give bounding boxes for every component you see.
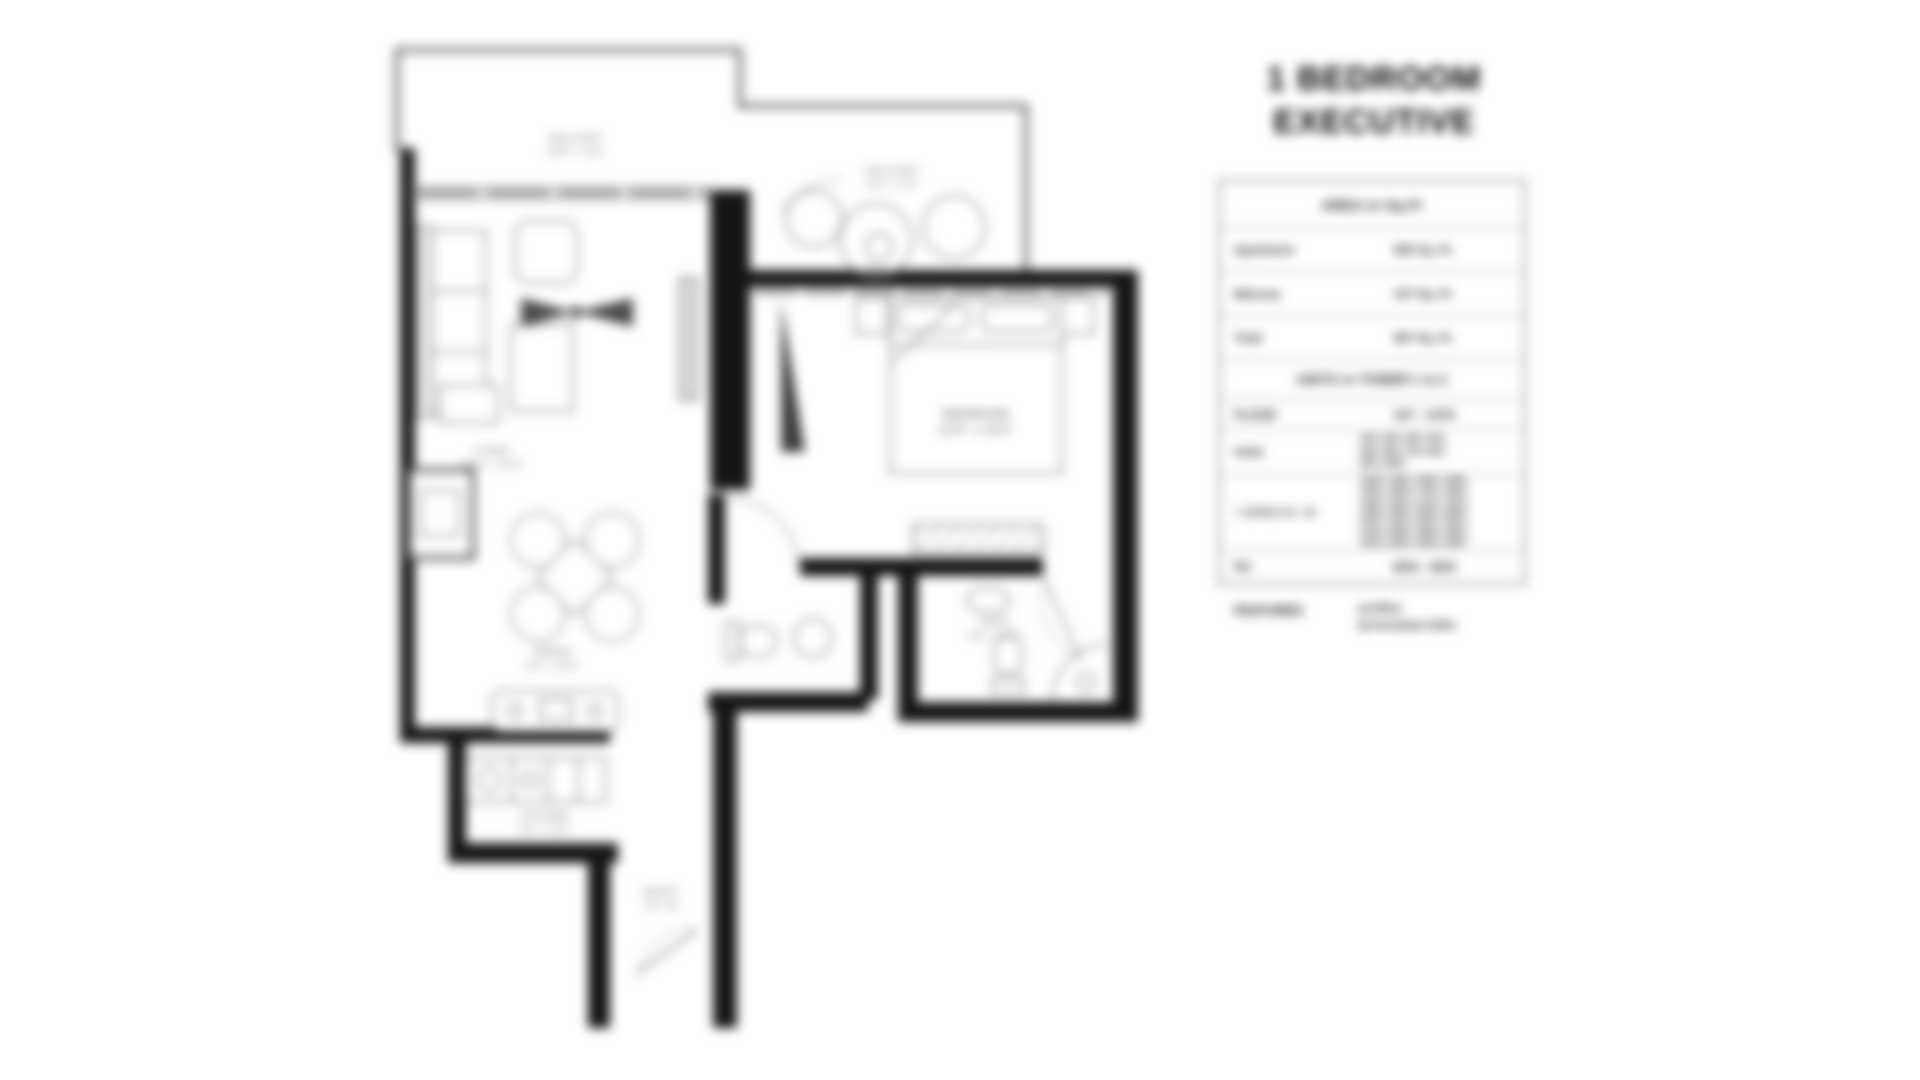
svg-text:BALCONY: BALCONY — [550, 133, 603, 144]
wc-toilet-bowl — [739, 625, 777, 657]
units-row-units: Units 104, 204, 304, 404, 504, 604, 704,… — [1220, 430, 1524, 475]
features-label: FEATURES — [1234, 603, 1303, 618]
plan-title-line1: 1 BEDROOM — [1218, 58, 1530, 101]
tv-console-knob — [508, 704, 522, 718]
pillow — [982, 305, 1052, 331]
bedroom-furniture — [856, 298, 1094, 473]
svg-text:BATH: BATH — [981, 617, 1010, 628]
wall-bath-top — [800, 558, 1043, 576]
plan-title-line2: EXECUTIVE — [1218, 101, 1530, 144]
section-marker — [781, 300, 805, 452]
floorplan-drawing: BALCONY 14'8" x 4'6" BALCONY 9'2" x 7'6" — [0, 0, 1920, 1080]
coffee-table — [511, 325, 573, 411]
store-closet — [409, 470, 473, 558]
svg-text:9'0" x 8'6": 9'0" x 8'6" — [526, 661, 579, 672]
tv-panel — [680, 278, 697, 400]
wall-bedroom-top — [745, 270, 1138, 287]
svg-text:9'2" x 7'6": 9'2" x 7'6" — [866, 180, 919, 191]
fan-blade-right — [575, 298, 633, 327]
sofa-back — [417, 226, 432, 418]
kitchen-counter — [466, 758, 606, 802]
kitchen-hob — [522, 772, 538, 788]
bath-door — [1041, 578, 1081, 660]
living-room-furniture — [417, 221, 697, 423]
wall-bedroom-right — [1113, 270, 1138, 722]
bath-toilet-tank — [992, 678, 1024, 692]
svg-text:LIVING: LIVING — [474, 446, 510, 457]
svg-text:DINING: DINING — [534, 647, 572, 658]
area-row-balcony: Balcony 107 Sq. Ft. — [1220, 272, 1524, 316]
wall-corridor-right — [713, 708, 737, 1028]
svg-text:7'6" x 5'0": 7'6" x 5'0" — [518, 825, 571, 836]
pillow — [898, 305, 968, 331]
area-row-apartment: Apartment 560 Sq. Ft. — [1220, 228, 1524, 272]
wall-kitchen-left — [448, 743, 466, 848]
balcony-table-set — [786, 191, 985, 276]
levels-label: + LEVELS 15 - 34 — [1234, 507, 1315, 518]
area-row-value: 560 Sq. Ft. — [1360, 243, 1488, 257]
bedroom-door-arc — [728, 498, 799, 565]
info-panel: 1 BEDROOM EXECUTIVE AREA in Sq.Ft Apartm… — [1218, 58, 1530, 651]
nightstand-right — [1062, 298, 1094, 334]
svg-text:ENTRY: ENTRY — [643, 887, 679, 898]
wall-bath-left — [898, 568, 918, 708]
svg-text:KITCHEN: KITCHEN — [521, 811, 569, 822]
balcony-chair-right — [923, 196, 985, 258]
entry-door — [636, 929, 698, 974]
units-row-floor: FLOOR 1ST - 14TH — [1220, 400, 1524, 430]
area-row-label: Apartment — [1234, 243, 1294, 257]
ceiling-fan — [521, 298, 633, 327]
balcony-chair-left — [786, 191, 842, 247]
svg-text:4'0" W: 4'0" W — [644, 901, 678, 912]
tv-console-drawer — [540, 700, 572, 720]
svg-text:8'0" x 5'0": 8'0" x 5'0" — [969, 631, 1022, 642]
wc-sink — [794, 619, 832, 657]
area-row-label: Total — [1234, 331, 1262, 345]
units-row-levels: + LEVELS 15 - 34 1104, 1204, 1304, 1404,… — [1220, 475, 1524, 551]
kitchen-label: KITCHEN 7'6" x 5'0" — [518, 811, 571, 836]
balcony-side-label: BALCONY 9'2" x 7'6" — [866, 166, 919, 191]
wc-fixtures — [726, 619, 832, 660]
info-table: AREA in Sq.Ft Apartment 560 Sq. Ft. Balc… — [1218, 180, 1526, 585]
floor-value: 1ST - 14TH — [1360, 408, 1488, 422]
levels-value: 1104, 1204, 1304, 1404, 1504, 1604, 1704… — [1360, 475, 1522, 550]
wc-toilet-tank — [726, 622, 739, 660]
svg-text:BALCONY: BALCONY — [867, 166, 920, 177]
plan-title: 1 BEDROOM EXECUTIVE — [1218, 58, 1530, 144]
wall-corridor-left — [588, 843, 610, 1028]
area-row-value: 667 Sq. Ft. — [1360, 331, 1488, 345]
bath-label: BATH 8'0" x 5'0" — [969, 617, 1022, 642]
bathroom-fixtures — [966, 588, 1107, 700]
shower-curve — [1052, 645, 1107, 700]
side-table — [440, 385, 498, 423]
area-table-header: AREA in Sq.Ft — [1220, 182, 1524, 228]
units-row-ph: PH 3504 - 3604 — [1220, 551, 1524, 583]
dining-set — [511, 513, 639, 641]
wall-bath-divider — [860, 576, 878, 700]
area-row-value: 107 Sq. Ft. — [1360, 287, 1488, 301]
nightstand-left — [856, 298, 888, 334]
units-table-header: UNITS in TOWER 1 & 2 — [1220, 360, 1524, 400]
features-items: a) Office b) Furnished 100% — [1358, 601, 1456, 635]
ph-value: 3504 - 3604 — [1360, 560, 1488, 574]
units-value: 104, 204, 304, 404, 504, 604, 704, 804, … — [1360, 433, 1522, 471]
features-block: FEATURES a) Office b) Furnished 100% — [1218, 601, 1530, 651]
kitchen-sink — [478, 769, 500, 791]
svg-text:14'8" x 4'6": 14'8" x 4'6" — [546, 147, 605, 158]
blurred-layer: BALCONY 14'8" x 4'6" BALCONY 9'2" x 7'6" — [0, 0, 1920, 1080]
balcony-table — [840, 204, 912, 276]
shower-drain — [1077, 673, 1095, 691]
balcony-table-center — [866, 234, 892, 260]
walls — [400, 148, 1138, 1028]
bath-sink — [966, 588, 1010, 612]
balcony-top-label: BALCONY 14'8" x 4'6" — [546, 133, 605, 158]
dining-label: DINING 9'0" x 8'6" — [526, 647, 579, 672]
ph-label: PH — [1234, 560, 1251, 574]
wall-hall-right — [708, 494, 725, 604]
living-label: LIVING 12'6" x 11'0" — [460, 446, 525, 471]
fan-hub — [570, 306, 582, 318]
area-row-label: Balcony — [1234, 287, 1281, 301]
wardrobe — [913, 525, 1043, 553]
entry-label: ENTRY 4'0" W — [643, 887, 679, 912]
floorplan-page: BALCONY 14'8" x 4'6" BALCONY 9'2" x 7'6" — [0, 0, 1920, 1080]
wall-bath-bottom — [898, 702, 1138, 722]
svg-text:11'6" x 10'0": 11'6" x 10'0" — [938, 423, 1014, 437]
wall-left — [400, 148, 415, 740]
tv-console — [492, 691, 618, 731]
wall-shaft — [710, 190, 750, 490]
svg-text:BEDROOM: BEDROOM — [943, 407, 1009, 421]
wall-wc-bottom — [708, 692, 868, 712]
armchair — [515, 221, 577, 283]
fan-blade-left — [521, 298, 575, 327]
tv-console-knob — [588, 704, 602, 718]
area-row-total: Total 667 Sq. Ft. — [1220, 316, 1524, 360]
units-label: Units — [1234, 445, 1264, 459]
floor-label: FLOOR — [1234, 408, 1276, 422]
